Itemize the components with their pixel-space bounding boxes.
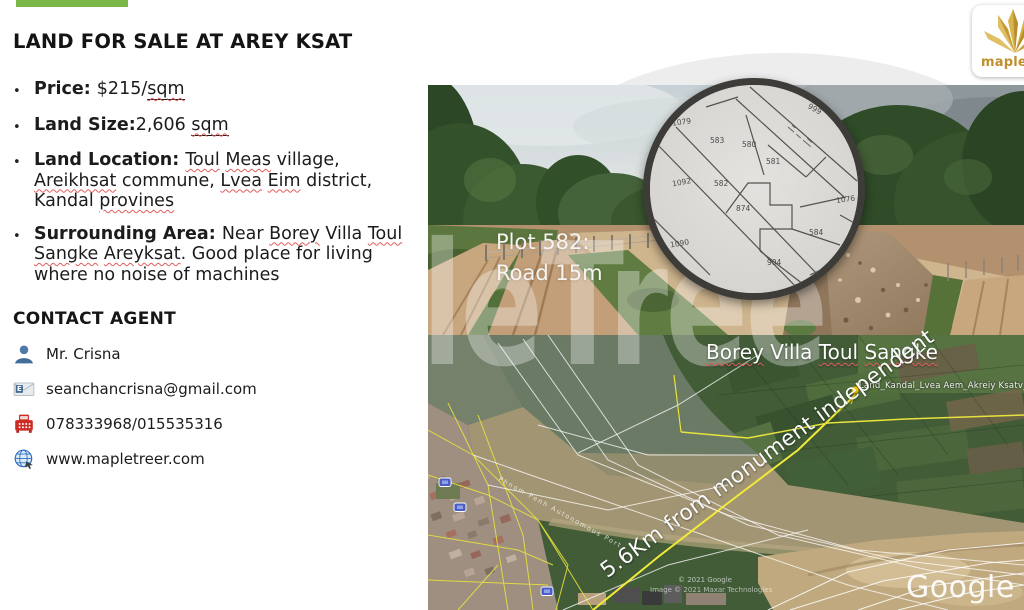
svg-text:583: 583 <box>710 136 725 145</box>
bullet-price: •Price: $215/sqm <box>13 79 425 103</box>
agent-email: seanchancrisna@gmail.com <box>46 380 257 398</box>
bullet-surrounding-text: Surrounding Area: Near Borey Villa Toul … <box>34 224 425 286</box>
svg-text:582: 582 <box>714 179 729 188</box>
bullet-dot: • <box>13 115 34 139</box>
bullet-location-text: Land Location: Toul Meas village, Areikh… <box>34 150 425 212</box>
contact-heading: CONTACT AGENT <box>13 309 425 329</box>
bullet-land-size: •Land Size:2,606 sqm <box>13 115 425 139</box>
plot-map-inset: 1079 583 580 581 582 1092 874 1076 584 1… <box>643 78 865 300</box>
contact-item-email: E seanchancrisna@gmail.com <box>13 378 425 400</box>
plot-note-line1: Plot 582: <box>496 227 603 258</box>
maple-leaf-icon <box>972 5 1024 55</box>
svg-text:E: E <box>17 384 22 393</box>
agent-name: Mr. Crisna <box>46 345 121 363</box>
email-icon: E <box>13 378 35 400</box>
plot-note: Plot 582: Road 15m <box>496 227 603 289</box>
svg-text:584: 584 <box>809 228 824 237</box>
svg-text:904: 904 <box>767 258 782 267</box>
google-watermark: Google <box>906 570 1015 605</box>
bullet-location: •Land Location: Toul Meas village, Areik… <box>13 150 425 212</box>
bullet-dot: • <box>13 150 34 212</box>
svg-text:580: 580 <box>742 140 757 149</box>
contact-item-phone: 078333968/015535316 <box>13 413 425 435</box>
svg-text:581: 581 <box>766 157 781 166</box>
google-credit: © 2021 Google <box>678 576 732 584</box>
bullet-dot: • <box>13 79 34 103</box>
slide: LAND FOR SALE AT AREY KSAT •Price: $215/… <box>0 0 1024 610</box>
contact-item-agent: Mr. Crisna <box>13 343 425 365</box>
globe-icon <box>13 448 35 470</box>
bullet-surrounding: •Surrounding Area: Near Borey Villa Toul… <box>13 224 425 286</box>
logo-text: mapletree <box>981 55 1024 70</box>
maxar-credit: Image © 2021 Maxar Technologies <box>650 586 772 594</box>
info-panel: LAND FOR SALE AT AREY KSAT •Price: $215/… <box>13 30 425 483</box>
bullet-price-text: Price: $215/sqm <box>34 79 185 103</box>
plot-note-line2: Road 15m <box>496 258 603 289</box>
contact-list: Mr. Crisna E seanchancrisna@gmail.com 07… <box>13 343 425 470</box>
brand-logo: mapletree <box>972 5 1024 77</box>
svg-text:874: 874 <box>736 204 751 213</box>
listing-bullets: •Price: $215/sqm •Land Size:2,606 sqm •L… <box>13 79 425 285</box>
page-title: LAND FOR SALE AT AREY KSAT <box>13 30 425 53</box>
contact-item-website: www.mapletreer.com <box>13 448 425 470</box>
bullet-land-size-text: Land Size:2,606 sqm <box>34 115 229 139</box>
agent-website: www.mapletreer.com <box>46 450 205 468</box>
agent-phone: 078333968/015535316 <box>46 415 223 433</box>
accent-bar <box>16 0 128 7</box>
fax-icon <box>13 413 35 435</box>
bullet-dot: • <box>13 224 34 286</box>
person-icon <box>13 343 35 365</box>
